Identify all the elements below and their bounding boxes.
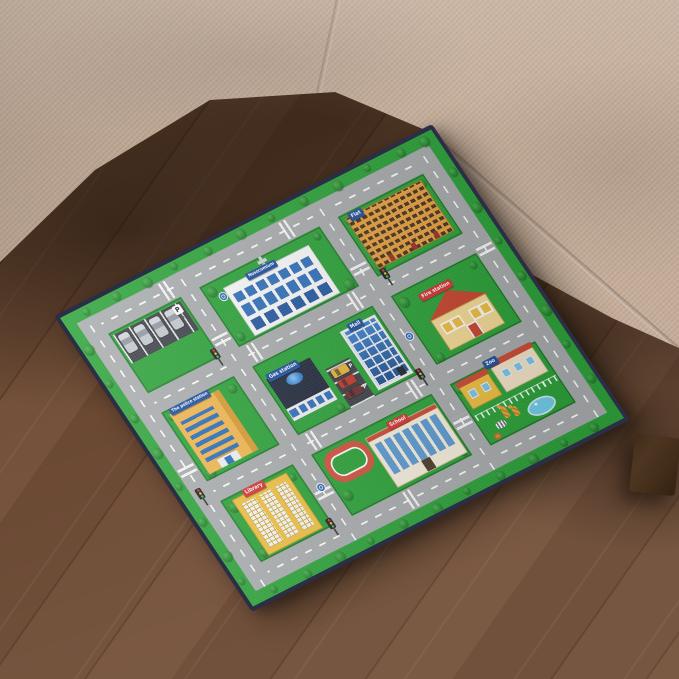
tree-icon <box>301 567 314 579</box>
tree-icon <box>430 501 446 515</box>
tree-icon <box>587 421 600 433</box>
zoo-window <box>467 388 479 399</box>
tree-icon <box>362 163 373 173</box>
tree-icon <box>265 212 276 222</box>
tree-icon <box>104 379 115 389</box>
mall-door <box>396 365 407 376</box>
parking-sign-label: P <box>173 305 182 314</box>
tree-icon <box>168 261 179 271</box>
tree-icon <box>526 451 542 465</box>
tree-icon <box>494 469 507 481</box>
tree-icon <box>461 486 472 496</box>
sofa-leg <box>629 434 679 496</box>
tree-icon <box>268 584 279 594</box>
tree-icon <box>81 306 92 316</box>
room-scene: P The police station Nosocomium Flat <box>0 0 679 679</box>
sofa-seam <box>316 0 342 95</box>
sofa-seam <box>37 179 169 257</box>
zoo-window <box>500 367 512 378</box>
tree-icon <box>332 550 348 564</box>
zoo-window <box>480 381 492 392</box>
zoo-window <box>524 355 536 366</box>
tree-icon <box>417 134 433 148</box>
tree-icon <box>365 535 376 545</box>
tree-icon <box>558 437 569 447</box>
zoo-window <box>512 361 524 372</box>
tree-icon <box>397 518 410 530</box>
tree-icon <box>236 576 247 586</box>
